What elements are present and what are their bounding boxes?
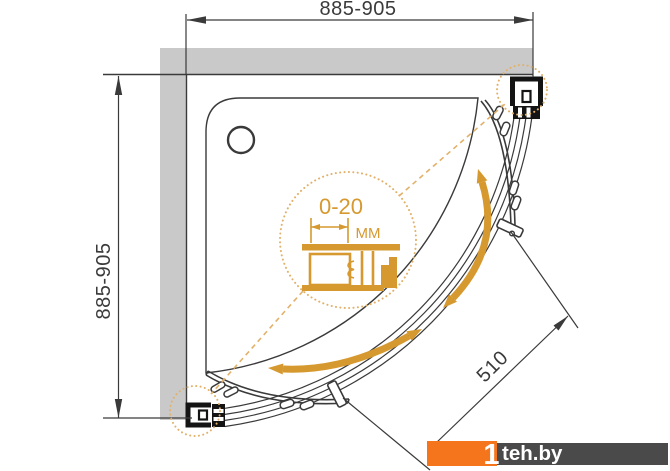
- dim-arrow-right-icon: [514, 16, 533, 23]
- watermark-logo-digit: 1: [483, 439, 499, 471]
- dim-arrow-left-icon: [187, 16, 206, 23]
- dim-arrow-down-icon: [115, 399, 122, 418]
- door-slide-arrow-right: [443, 169, 488, 308]
- dimension-top-label: 885-905: [320, 0, 397, 20]
- shower-tray: [206, 98, 478, 373]
- watermark: 1 teh.by: [427, 439, 668, 471]
- wall-profile-top-right: [513, 79, 541, 119]
- detail-connector-bottom: [211, 291, 303, 394]
- detail-connector-top: [399, 104, 505, 196]
- tray-outline: [206, 98, 478, 373]
- roller: [492, 105, 505, 121]
- wall-horizontal: [160, 48, 533, 74]
- shower-enclosure-drawing: 885-905 885-905 510 0-20 ММ: [0, 0, 670, 471]
- adjustment-range-label: 0-20: [319, 194, 363, 219]
- drain-circle-icon: [228, 127, 254, 153]
- dim-arrow-up-icon: [115, 76, 122, 95]
- watermark-site-label: teh.by: [502, 442, 563, 465]
- dimension-diagonal-label: 510: [473, 347, 513, 387]
- wall-vertical: [160, 48, 186, 420]
- profile-cross-section: [302, 244, 400, 291]
- sliding-door-bottom: [206, 371, 349, 411]
- unit-label: ММ: [356, 225, 381, 242]
- dimension-left-label: 885-905: [93, 243, 115, 320]
- technical-drawing-canvas: 885-905 885-905 510 0-20 ММ: [0, 0, 670, 471]
- detail-callout: 0-20 ММ: [302, 194, 400, 291]
- roller: [499, 121, 511, 137]
